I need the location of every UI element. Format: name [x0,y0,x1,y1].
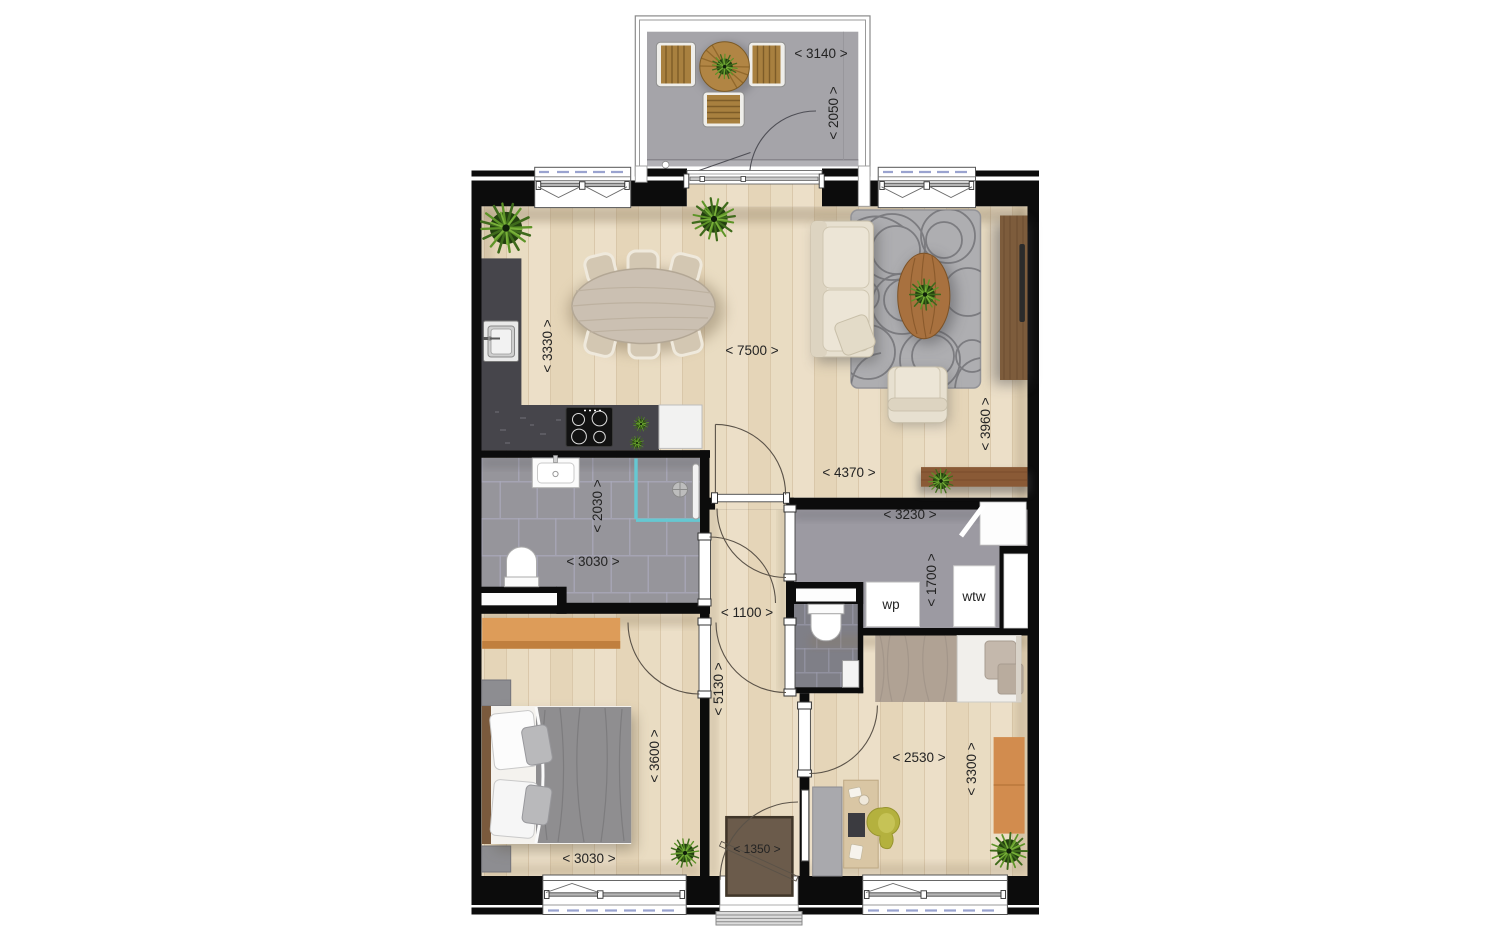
svg-text:< 3230 >: < 3230 > [883,507,936,522]
svg-text:< 1100 >: < 1100 > [721,605,773,620]
svg-text:< 3030 >: < 3030 > [566,554,619,569]
svg-text:< 3030 >: < 3030 > [562,851,615,866]
svg-text:< 2050 >: < 2050 > [826,86,841,139]
svg-text:< 3330 >: < 3330 > [540,319,555,372]
svg-text:< 3300 >: < 3300 > [964,742,979,795]
svg-text:< 3960 >: < 3960 > [978,397,993,450]
svg-text:< 1700 >: < 1700 > [924,553,939,606]
svg-text:< 1350 >: < 1350 > [733,842,780,856]
svg-text:< 3140 >: < 3140 > [794,46,847,61]
svg-text:wtw: wtw [961,589,986,604]
svg-text:< 3600 >: < 3600 > [647,729,662,782]
svg-text:< 2030 >: < 2030 > [590,479,605,532]
svg-text:wp: wp [881,597,899,612]
svg-text:< 5130 >: < 5130 > [711,662,726,715]
svg-text:< 7500 >: < 7500 > [725,343,778,358]
svg-text:< 2530 >: < 2530 > [892,750,945,765]
svg-text:< 4370 >: < 4370 > [822,465,875,480]
